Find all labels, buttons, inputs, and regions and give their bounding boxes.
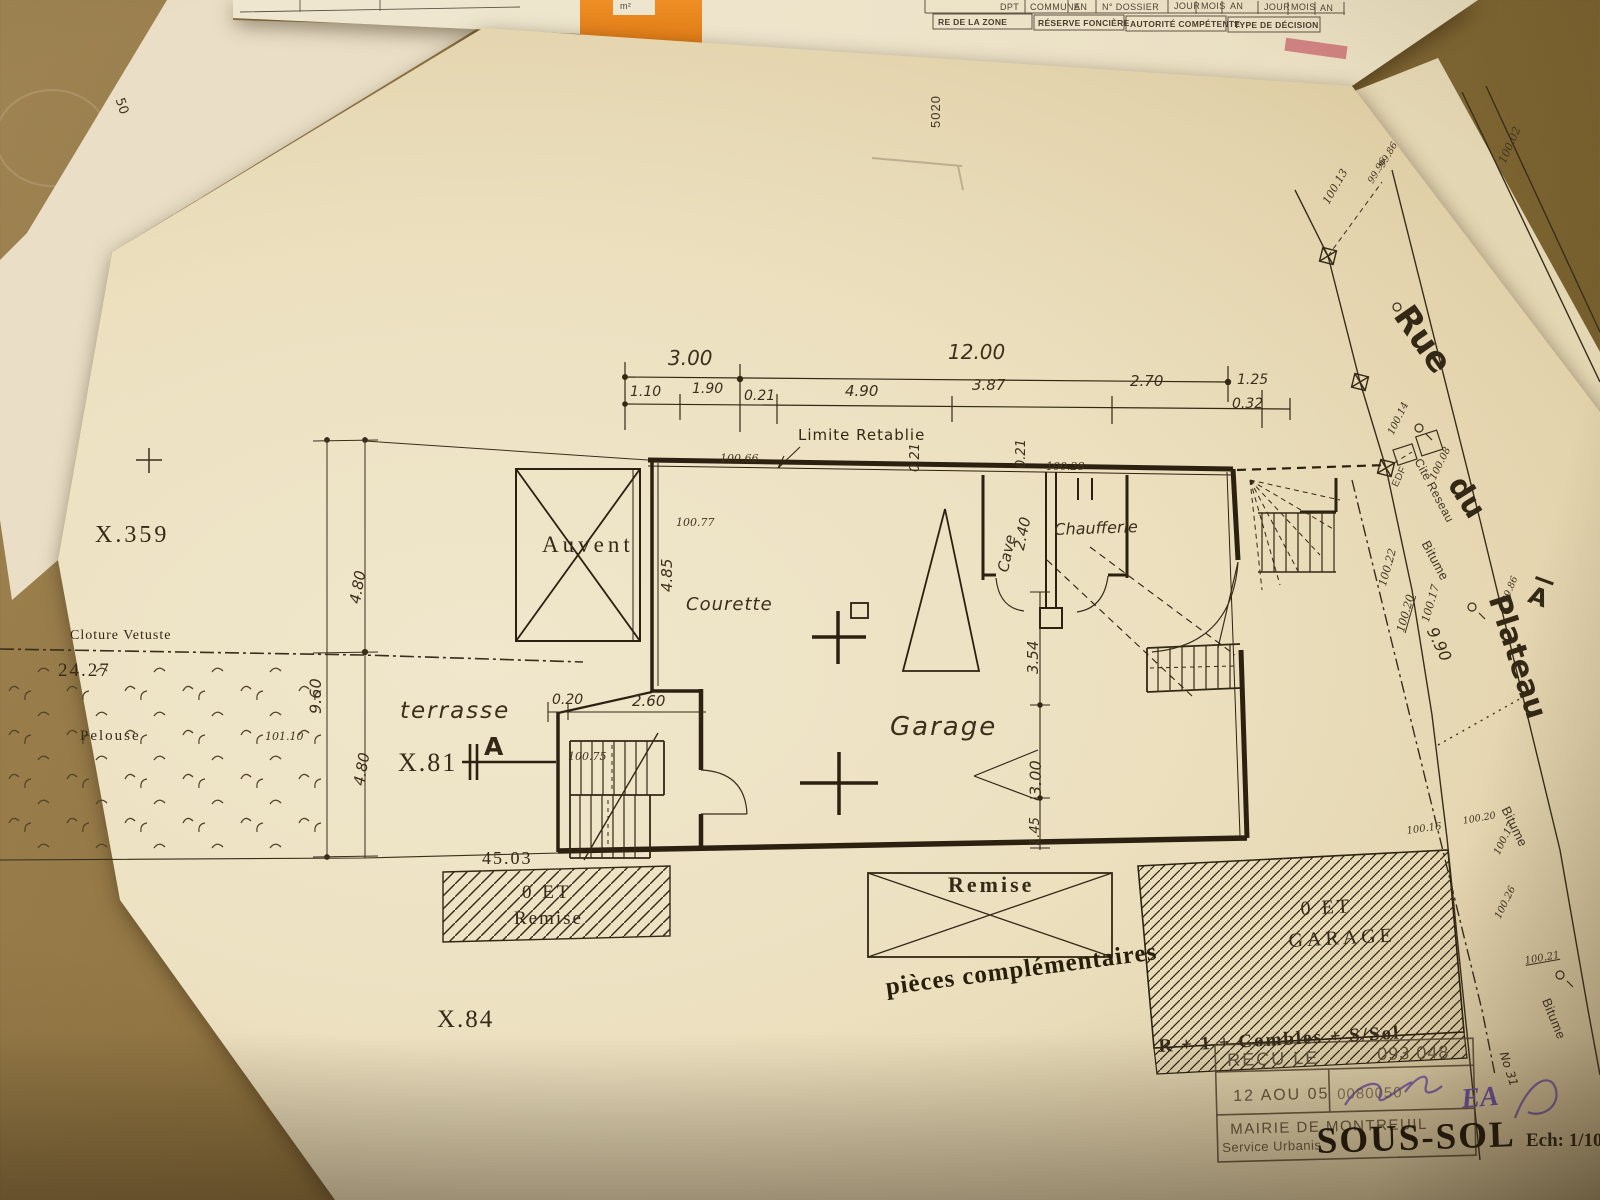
stamp-service: Service Urbanis: [1222, 1137, 1322, 1155]
dim-3-54: 3.54: [1024, 641, 1042, 674]
fence-label: Cloture Vetuste: [70, 628, 171, 644]
form-decision: TYPE DE DÉCISION: [1234, 20, 1319, 30]
dim-4-85: 4.85: [658, 559, 676, 592]
shed-box-line2: Remise: [514, 908, 583, 930]
form-col-mois2: MOIS: [1291, 2, 1316, 12]
dim-12-00: 12.00: [948, 340, 1005, 364]
initials-ea: EA: [1460, 1081, 1500, 1116]
form-col-commune: COMMUNE: [1030, 2, 1080, 12]
dim-0-21-vb: 0.21: [1014, 439, 1029, 468]
room-courette: Courette: [686, 594, 773, 615]
form-col-jour2: JOUR: [1264, 2, 1290, 12]
stamp-reg-no: 0080050: [1337, 1084, 1403, 1103]
level-100-28: 100.28: [1046, 460, 1085, 473]
dim-3-00: 3.00: [668, 346, 713, 370]
annex-shed-hatched: [443, 866, 670, 942]
room-auvent: Auvent: [542, 532, 634, 558]
room-remise: Remise: [948, 872, 1034, 898]
level-100-66: 100.66: [720, 452, 759, 465]
shed-box-line1: 0 ET: [522, 882, 571, 904]
dim-9-60: 9.60: [306, 678, 325, 714]
parcel-x81: X.81: [398, 748, 457, 778]
lawn-level: 101.10: [265, 730, 304, 743]
parcel-x84: X.84: [437, 1006, 494, 1034]
dim-0-32: 0.32: [1232, 396, 1263, 412]
dim-2-70: 2.70: [1130, 372, 1163, 390]
room-chaufferie: Chaufferie: [1054, 517, 1138, 539]
garage-box-line1: 0 ET: [1300, 895, 1353, 921]
dim-4-90: 4.90: [845, 382, 878, 400]
lawn-texture: [0, 658, 326, 858]
stamp-recu-no: 093 048: [1377, 1042, 1450, 1065]
dim-2-60: 2.60: [632, 692, 665, 710]
photo-of-floor-plan: { "form_sheet": { "corner_note": "50", "…: [0, 0, 1600, 1200]
parcel-x359: X.359: [95, 522, 169, 549]
limit-label: Limite Retablie: [798, 426, 925, 444]
form-col-dpt: DPT: [1000, 2, 1019, 12]
dim-0-20: 0.20: [552, 692, 583, 708]
form-col-an2: AN: [1230, 1, 1243, 11]
sheet-number: 5020: [928, 95, 943, 128]
form-col-jour1: JOUR: [1174, 1, 1200, 11]
stamp-recu-le: REÇU LE: [1227, 1048, 1320, 1071]
dim-0-21-va: 0.21: [908, 443, 923, 472]
dim-1-45: 1.45: [1028, 817, 1043, 846]
dim-3-00-v: 3.00: [1026, 760, 1045, 796]
section-marker: [462, 744, 556, 780]
section-a-mark: A: [484, 732, 503, 761]
stamp-date: 12 AOU 05: [1233, 1085, 1330, 1106]
drawing-title: SOUS-SOL: [1316, 1113, 1516, 1163]
pencil-marks: [872, 158, 963, 190]
lawn-label: Pelouse: [80, 728, 141, 745]
form-col-mois1: MOIS: [1201, 1, 1226, 11]
level-100-75: 100.75: [568, 750, 607, 763]
form-col-dossier: N° DOSSIER: [1102, 2, 1159, 12]
plan-linework: [0, 0, 1600, 1200]
unit-label: m²: [620, 1, 631, 11]
fence-posts: [1320, 248, 1395, 477]
fence-length: 24.27: [58, 660, 111, 682]
form-col-an1: AN: [1074, 2, 1087, 12]
plot-width: 45.03: [482, 848, 533, 869]
dim-1-10: 1.10: [630, 384, 661, 400]
form-col-an3: AN: [1320, 3, 1333, 13]
form-autorite: AUTORITÉ COMPÉTENTE: [1130, 19, 1240, 29]
level-100-77: 100.77: [676, 516, 715, 529]
dim-0-21: 0.21: [744, 388, 775, 404]
form-zone: RE DE LA ZONE: [938, 17, 1007, 27]
dim-1-90: 1.90: [692, 381, 723, 397]
room-garage: Garage: [890, 712, 997, 742]
dim-3-87: 3.87: [972, 376, 1005, 394]
form-reserve: RÉSERVE FONCIÈRE: [1038, 18, 1130, 28]
garage-dimension-line: [1030, 592, 1050, 850]
desk-faint-marks: [0, 90, 246, 258]
dim-1-25: 1.25: [1237, 372, 1268, 388]
scale-label: Ech: 1/100: [1526, 1130, 1600, 1152]
stair-exterior-winder: [1250, 480, 1340, 590]
terrace-label: terrasse: [400, 698, 510, 724]
